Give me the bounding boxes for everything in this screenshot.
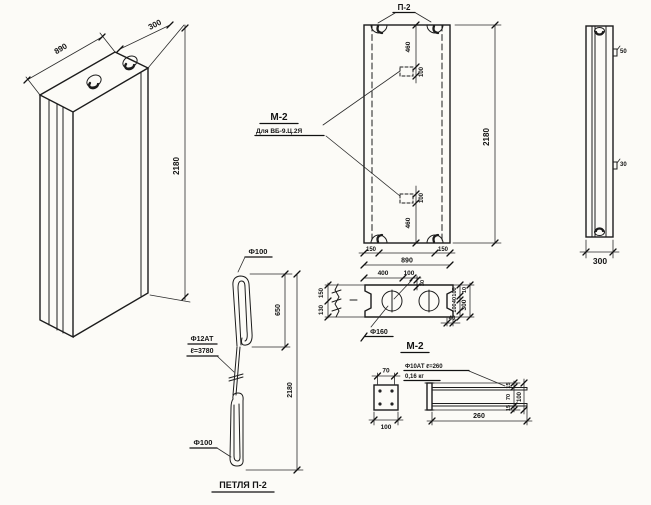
m2-plate-side: [427, 383, 432, 410]
loop-top-dia-label: Ф100: [249, 247, 268, 256]
loop-bar-spec: Ф12АТ: [191, 336, 214, 343]
m2-dim-100: 100: [381, 424, 392, 431]
m2-bar-spec: Ф10АТ ℓ=260: [405, 364, 443, 370]
front-panel-outline: [364, 25, 450, 243]
side-anchor-top-label: 50: [620, 49, 627, 55]
plan-dim-right-40: 40: [452, 297, 458, 303]
front-dim-width: 890: [401, 258, 413, 265]
plan-dim-notch-40: 40: [449, 316, 456, 322]
m2-dim-15a: 15: [506, 382, 512, 388]
m2-weight: 0,16 кг: [405, 374, 424, 380]
plan-dim-left-bottom: 130: [319, 304, 325, 315]
drawing-svg: 890 300 2180 460 100: [0, 0, 651, 505]
embedded-plate-bottom: [400, 194, 413, 203]
m2-dim-100b: 100: [517, 391, 523, 402]
front-dim-height: 2180: [482, 128, 491, 146]
front-anchor-ref-label: М-2: [270, 112, 288, 123]
front-view: 460 100 100 460 П-2 М-2 Для ВБ-9.Ц.2Я 21…: [255, 3, 501, 299]
iso-dim-height: 2180: [172, 157, 181, 175]
front-dim-bottom-plate: 100: [419, 192, 425, 203]
embedded-plate-top: [400, 67, 413, 76]
side-panel-outline: [586, 26, 613, 237]
isometric-view: 890 300 2180: [24, 17, 190, 337]
plan-outline: [365, 285, 453, 317]
loop-bar-length: ℓ=3780: [190, 348, 213, 355]
m2-plate-face: [374, 385, 398, 410]
front-dim-margin-right: 150: [438, 247, 449, 253]
side-view: 50 30 300: [580, 26, 627, 266]
technical-drawing-sheet: 890 300 2180 460 100: [0, 0, 651, 505]
loop-dim-650: 650: [275, 304, 282, 316]
iso-panel-outline: [40, 52, 148, 337]
front-loop-ref-label: П-2: [398, 3, 411, 12]
front-dim-bottom-offset: 460: [405, 217, 412, 228]
m2-dim-15b: 15: [506, 405, 512, 411]
front-anchor-note: Для ВБ-9.Ц.2Я: [256, 128, 302, 135]
front-dim-400: 400: [378, 270, 389, 277]
front-dim-margin-left: 150: [366, 247, 377, 253]
side-anchor-mid-label: 30: [620, 162, 627, 168]
m2-detail-title: М-2: [406, 341, 424, 352]
iso-dim-width: 890: [53, 41, 70, 56]
plan-dim-right-300: 300: [461, 299, 468, 310]
plan-dim-left-top: 150: [319, 287, 325, 298]
front-dim-top-plate: 100: [419, 66, 425, 77]
plan-hole-dia-label: Ф160: [370, 329, 388, 336]
iso-lifting-loop: [85, 73, 103, 90]
front-dim-top-offset: 460: [405, 41, 412, 52]
front-dim-100: 100: [404, 270, 415, 277]
loop-bottom-dia-label: Ф100: [194, 438, 213, 447]
m2-dim-260: 260: [473, 413, 485, 420]
plan-dim-right-10: 10: [462, 287, 468, 293]
m2-dim-70b: 70: [506, 394, 512, 400]
loop-dim-height: 2180: [287, 382, 294, 398]
loop-detail-view: Ф100 650 2180 Ф12АТ ℓ=3780 Ф100 ПЕТЛЯ П-…: [187, 247, 303, 492]
plan-dim-right-100a: 100: [452, 287, 458, 296]
plan-view: Ф160 150 130 100 40 100 10 300: [319, 282, 474, 341]
side-dim-depth: 300: [593, 256, 607, 266]
loop-detail-title: ПЕТЛЯ П-2: [219, 480, 267, 490]
m2-dim-70: 70: [382, 368, 390, 375]
plan-dim-right-100b: 100: [452, 303, 458, 312]
m2-detail-view: М-2 70 100 Ф10АТ ℓ=260 0,16 кг: [369, 341, 532, 431]
